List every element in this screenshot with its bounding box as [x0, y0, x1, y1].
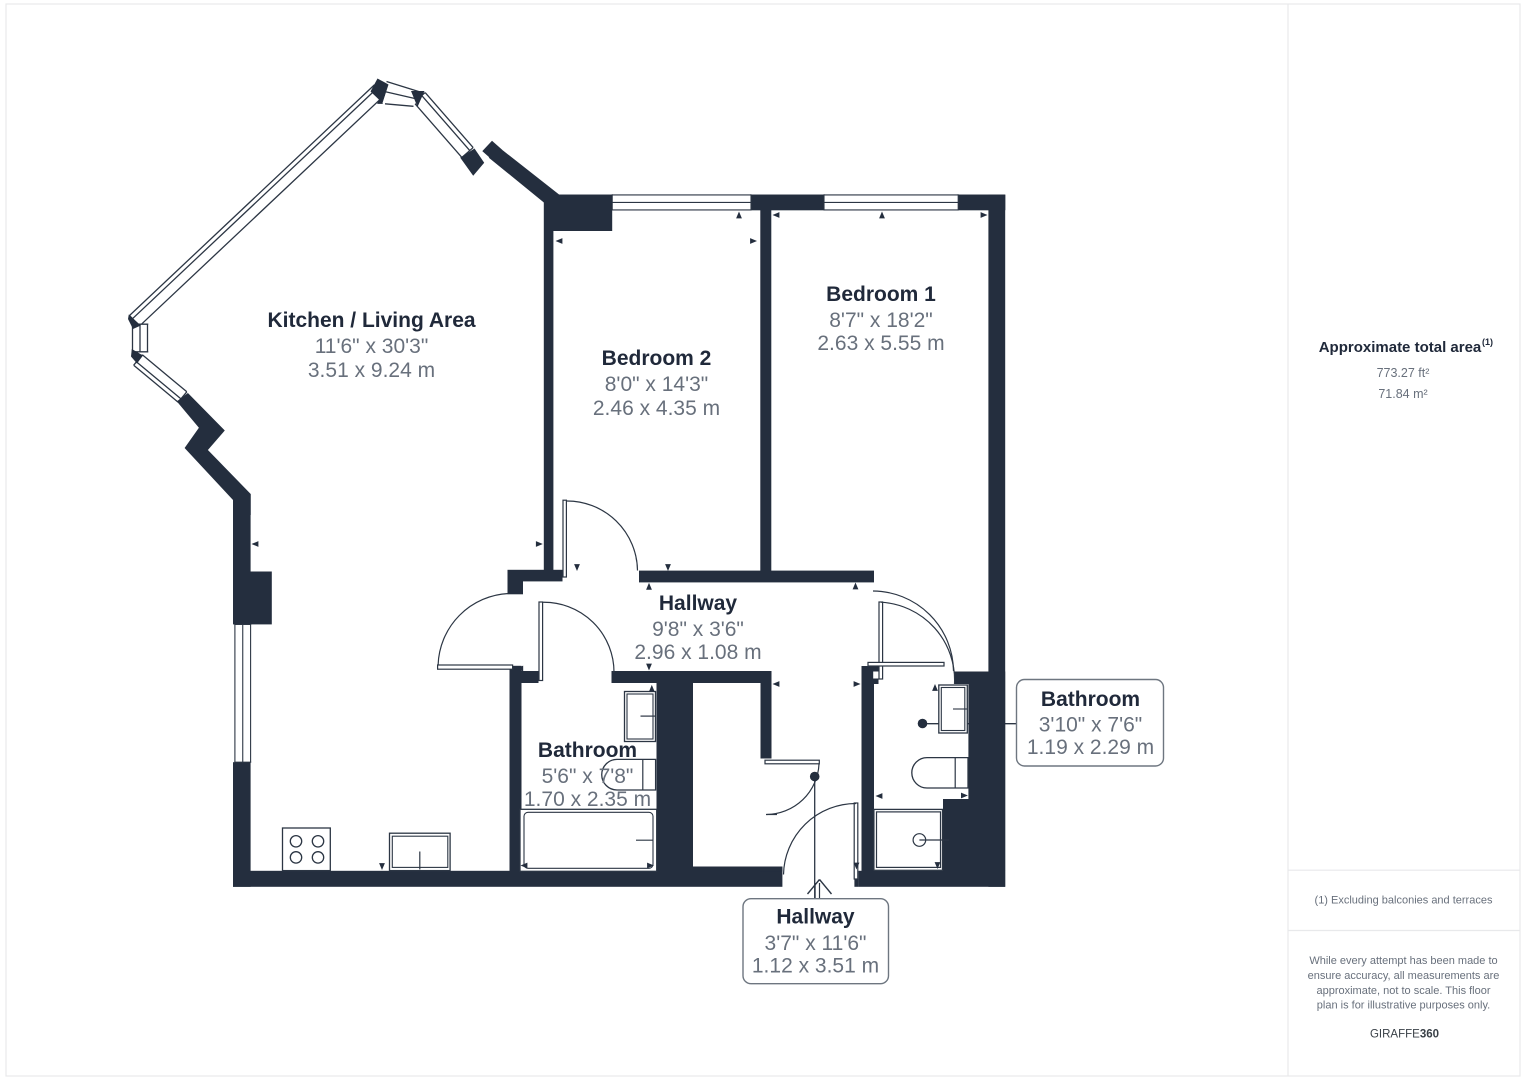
svg-text:71.84 m²: 71.84 m² [1378, 387, 1427, 401]
svg-text:Hallway: Hallway [776, 906, 855, 929]
svg-text:approximate, not to scale. Thi: approximate, not to scale. This floor [1316, 985, 1490, 997]
svg-text:2.46 x 4.35 m: 2.46 x 4.35 m [593, 397, 720, 420]
svg-text:Bathroom: Bathroom [1041, 688, 1140, 711]
svg-text:5'6" x 7'8": 5'6" x 7'8" [542, 765, 634, 788]
svg-text:Hallway: Hallway [659, 592, 738, 615]
svg-text:Bedroom 2: Bedroom 2 [602, 347, 712, 370]
svg-text:3'10" x 7'6": 3'10" x 7'6" [1039, 714, 1143, 737]
svg-text:ensure accuracy, all measureme: ensure accuracy, all measurements are [1308, 970, 1500, 982]
svg-text:Approximate total area: Approximate total area [1319, 339, 1482, 356]
svg-text:While every attempt has been m: While every attempt has been made to [1309, 955, 1497, 967]
svg-text:773.27 ft²: 773.27 ft² [1377, 366, 1430, 380]
svg-text:1.70 x 2.35 m: 1.70 x 2.35 m [524, 788, 651, 811]
svg-text:2.96 x 1.08 m: 2.96 x 1.08 m [634, 641, 761, 664]
svg-text:2.63 x 5.55 m: 2.63 x 5.55 m [817, 332, 944, 355]
svg-text:1.12 x 3.51 m: 1.12 x 3.51 m [752, 955, 879, 978]
svg-text:GIRAFFE360: GIRAFFE360 [1370, 1029, 1439, 1041]
svg-text:9'8" x 3'6": 9'8" x 3'6" [652, 618, 744, 641]
svg-text:Bathroom: Bathroom [538, 739, 637, 762]
svg-text:(1): (1) [1482, 337, 1493, 347]
svg-text:8'0" x 14'3": 8'0" x 14'3" [605, 373, 709, 396]
svg-text:3'7" x 11'6": 3'7" x 11'6" [765, 932, 867, 955]
svg-text:8'7" x 18'2": 8'7" x 18'2" [829, 309, 933, 332]
svg-text:Kitchen / Living Area: Kitchen / Living Area [267, 309, 475, 332]
svg-text:Bedroom 1: Bedroom 1 [826, 283, 936, 306]
svg-text:(1) Excluding balconies and te: (1) Excluding balconies and terraces [1315, 895, 1493, 907]
svg-text:plan is for illustrative purpo: plan is for illustrative purposes only. [1317, 1000, 1490, 1012]
svg-text:11'6" x 30'3": 11'6" x 30'3" [315, 335, 429, 358]
svg-text:3.51 x 9.24 m: 3.51 x 9.24 m [308, 359, 435, 382]
svg-text:1.19 x 2.29 m: 1.19 x 2.29 m [1027, 736, 1154, 759]
